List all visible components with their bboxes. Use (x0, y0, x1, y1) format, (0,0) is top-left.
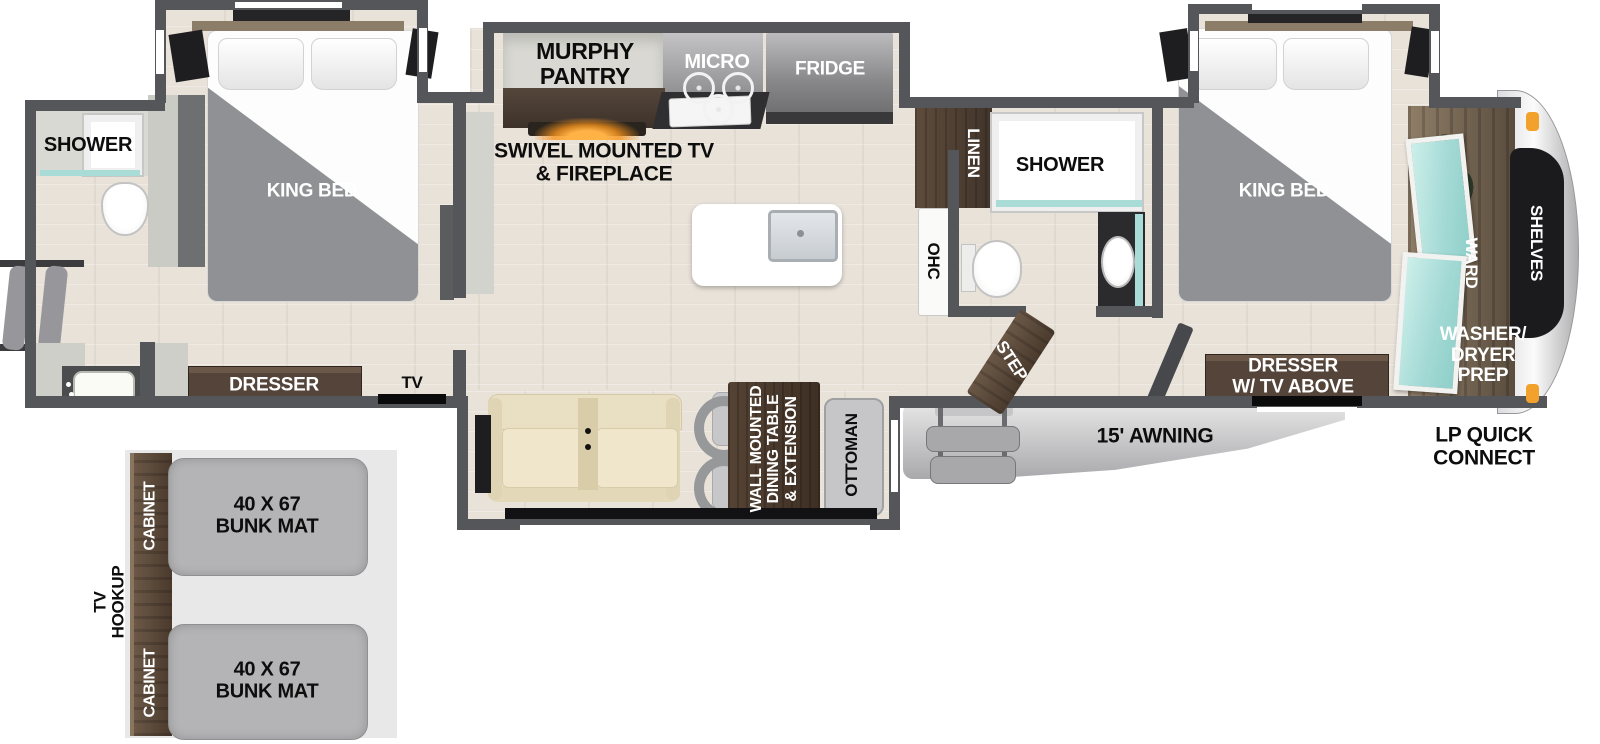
ohc-label: OHC (924, 243, 942, 280)
wall-rear-bath-top (25, 100, 165, 111)
mid-shower-label: SHOWER (1016, 155, 1104, 177)
bunk-mat-bottom-label: 40 X 67 BUNK MAT (216, 659, 319, 702)
sofa-cupholder-1 (585, 428, 591, 434)
awning-label: 15' AWNING (1097, 426, 1214, 449)
ottoman-label: OTTOMAN (843, 413, 861, 497)
rear-shower-label: SHOWER (44, 135, 132, 157)
wall-rearbath-stub (140, 342, 155, 402)
front-slide-top-window (1252, 4, 1362, 10)
murphy-pantry-label: MURPHY PANTRY (536, 39, 634, 89)
lp-quick-connect-label: LP QUICK CONNECT (1433, 424, 1535, 469)
micro-label: MICRO (684, 52, 749, 74)
rear-slide-right-window (419, 28, 427, 72)
rear-tv (378, 394, 446, 404)
wall-front-top-link (1429, 97, 1521, 108)
stove-burner-3 (703, 94, 734, 125)
entry-step-tread-2 (930, 456, 1016, 484)
rear-bath-cabinet-light (148, 95, 178, 267)
swivel-tv-fireplace-label: SWIVEL MOUNTED TV & FIREPLACE (494, 140, 714, 185)
front-pillow-left (1189, 38, 1277, 90)
tv-hookup-label: TV HOOKUP (92, 566, 129, 639)
wall-kitchen-right (899, 22, 910, 108)
living-window-front (505, 508, 877, 519)
rear-tv-label: TV (401, 374, 422, 392)
rear-tv-wall-dark (440, 205, 454, 300)
wall-midbath-left (948, 150, 959, 315)
wall-bedroom-kitchen-divider-low (453, 350, 466, 408)
wall-kitchen-top (483, 22, 910, 33)
rear-king-bed-label: KING BED (267, 182, 358, 203)
bunk-cabinet-top-label: CABINET (141, 481, 158, 550)
wall-rear-left (25, 100, 36, 408)
rear-bath-panel-right (155, 343, 188, 401)
rear-bath-cabinet-dark (178, 95, 205, 267)
fridge-label: FRIDGE (795, 60, 865, 81)
rear-vanity-faucet (66, 382, 71, 387)
ward-label: WARD (1462, 238, 1480, 289)
dining-table-label: WALL MOUNTED DINING TABLE & EXTENSION (748, 386, 800, 513)
mid-shower-glass (996, 200, 1142, 207)
living-slide-bottom-window (520, 525, 870, 531)
living-slide-right-window (891, 420, 898, 492)
front-king-bed-label: KING BED (1239, 182, 1330, 203)
bunk-mat-top-label: 40 X 67 BUNK MAT (216, 494, 319, 537)
mid-vanity-glass (1135, 214, 1143, 310)
rear-window-left (168, 30, 209, 83)
sofa-cushion-left (502, 428, 584, 488)
front-wall-window (1257, 407, 1357, 412)
wall-bedroom-kitchen-divider (453, 100, 466, 298)
wall-midbath-bedroom (1152, 103, 1163, 318)
marker-light-bottom (1526, 384, 1539, 403)
island-sink-drain (797, 230, 804, 237)
mid-vanity-sink (1101, 236, 1135, 288)
linen-label: LINEN (964, 128, 982, 178)
rear-headboard-shelf (192, 21, 404, 31)
entry-step-tread-1 (926, 426, 1020, 452)
island-sink (768, 210, 838, 262)
shelves-label: SHELVES (1527, 205, 1545, 281)
rear-pillow-left (218, 38, 304, 90)
wall-midbath-top (899, 97, 1194, 108)
rear-pillow-right (311, 38, 397, 90)
rear-tv-wall-light (466, 112, 494, 294)
rear-headboard (233, 10, 350, 21)
fireplace-glow (535, 118, 639, 140)
marker-light-top (1526, 112, 1539, 131)
washer-dryer-prep-label: WASHER/ DRYER PREP (1440, 325, 1527, 387)
rear-shower-glass (40, 170, 140, 176)
fridge-base (766, 112, 893, 124)
rear-slide-top-window (235, 2, 342, 8)
sofa-cupholder-2 (585, 444, 591, 450)
wall-kitchen-left (483, 22, 494, 103)
bunk-cabinet-bottom-label: CABINET (141, 648, 158, 717)
living-window-left (475, 415, 491, 493)
front-dresser-label: DRESSER W/ TV ABOVE (1232, 356, 1354, 397)
rear-dresser-label: DRESSER (229, 376, 319, 397)
rv-floorplan: 15' AWNING LP QUICK CONNECT SHOWER (0, 0, 1600, 744)
front-slide-right-window (1431, 31, 1439, 73)
sofa-cushion-right (596, 428, 678, 488)
rear-slide-left-window (156, 30, 164, 74)
wall-midbath-bottom-left (948, 306, 1026, 317)
front-pillow-right (1283, 38, 1369, 90)
wall-living-slide-left (457, 396, 468, 530)
mid-toilet (972, 240, 1022, 298)
front-slide-left-window (1190, 31, 1198, 71)
